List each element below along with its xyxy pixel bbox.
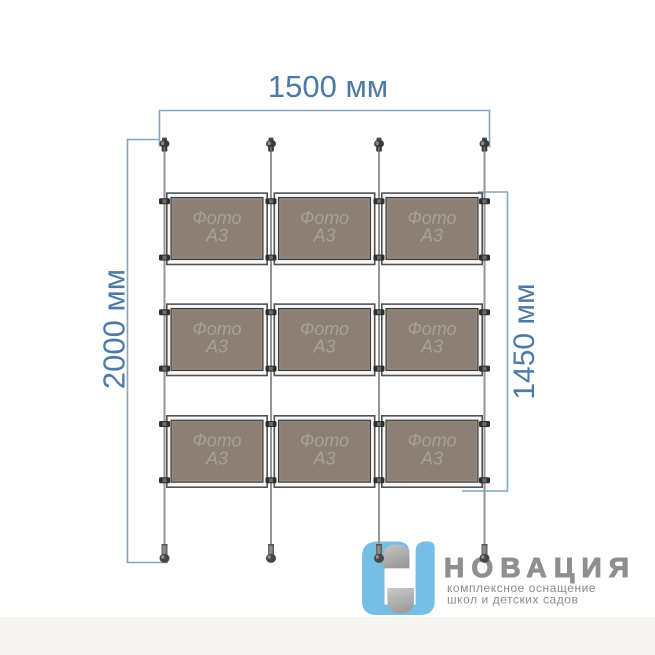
svg-text:А3: А3 bbox=[312, 226, 335, 246]
svg-text:А3: А3 bbox=[420, 448, 443, 468]
svg-text:А3: А3 bbox=[312, 337, 335, 357]
svg-text:А3: А3 bbox=[205, 337, 228, 357]
svg-text:А3: А3 bbox=[420, 226, 443, 246]
svg-text:1450 мм: 1450 мм bbox=[508, 283, 541, 399]
svg-text:А3: А3 bbox=[420, 337, 443, 357]
svg-text:А3: А3 bbox=[205, 226, 228, 246]
svg-text:1500 мм: 1500 мм bbox=[268, 69, 388, 104]
svg-text:А3: А3 bbox=[205, 448, 228, 468]
svg-text:2000 мм: 2000 мм bbox=[97, 269, 132, 389]
svg-text:А3: А3 bbox=[312, 448, 335, 468]
svg-text:НОВАЦИЯ: НОВАЦИЯ bbox=[444, 552, 636, 583]
svg-text:школ и детских садов: школ и детских садов bbox=[447, 593, 578, 607]
